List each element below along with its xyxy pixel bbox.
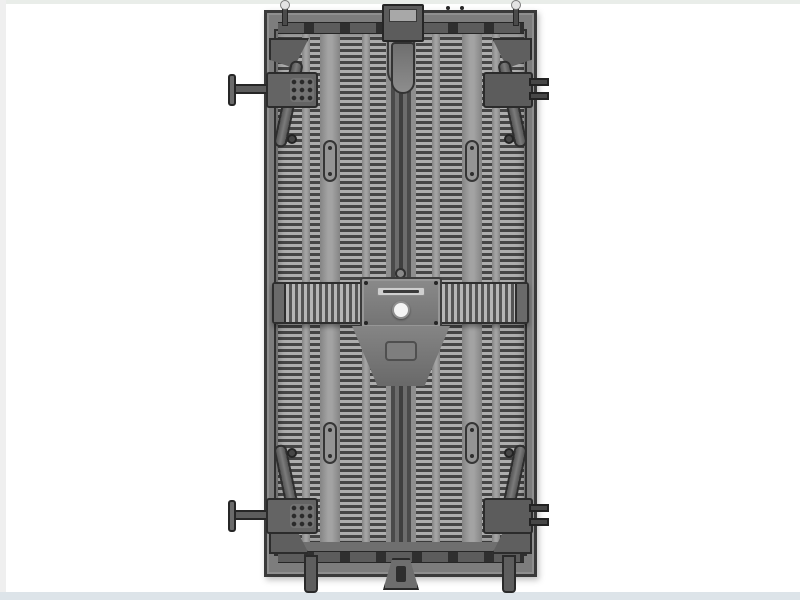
corner-latch-bottom-right: [462, 418, 532, 558]
t-handle-bar: [234, 510, 268, 520]
product-photo-stage: [0, 0, 800, 600]
top-latch-plate: [389, 9, 417, 22]
pin-cap: [280, 0, 290, 10]
round-emblem-button: [392, 301, 410, 319]
pin-cap: [511, 0, 521, 10]
page-edge-left: [0, 0, 6, 594]
shield-recess: [385, 341, 417, 361]
lock-bolt: [529, 78, 549, 86]
corner-bolt-hole: [287, 134, 297, 144]
top-center-latch: [382, 4, 426, 100]
top-latch-tongue: [391, 42, 415, 94]
latch-grip-dots: [290, 78, 314, 102]
lock-block-body: [483, 498, 533, 534]
nameplate-text-blur: [383, 290, 419, 293]
corner-bolt-hole: [287, 448, 297, 458]
t-handle-latch-top-left: [228, 70, 320, 110]
bar-end-cap-left: [274, 284, 286, 322]
screw-dot: [460, 6, 464, 10]
screw-dot: [446, 6, 450, 10]
lock-block-top-right: [483, 70, 557, 110]
plate-screw: [434, 321, 438, 325]
bottom-foot-hole: [396, 566, 406, 582]
bottom-hook-left: [304, 555, 318, 593]
floor-strip: [0, 592, 800, 600]
top-guide-pin-right: [511, 0, 521, 26]
lock-block-bottom-right: [483, 496, 557, 536]
t-handle-bar: [234, 84, 268, 94]
lock-bolt: [529, 504, 549, 512]
led-cabinet-rear: [264, 10, 537, 587]
corner-latch-bottom-left: [269, 418, 339, 558]
plate-screw: [364, 281, 368, 285]
corner-bolt-hole: [504, 134, 514, 144]
corner-plate: [269, 38, 309, 68]
bar-end-cap-right: [515, 284, 527, 322]
lock-bolt: [529, 92, 549, 100]
top-guide-pin-left: [280, 0, 290, 26]
latch-grip-dots: [290, 504, 314, 528]
brand-nameplate: [377, 287, 425, 296]
plate-screw: [434, 281, 438, 285]
bottom-hook-right: [502, 555, 516, 593]
lock-block-body: [483, 72, 533, 108]
plate-screw: [364, 321, 368, 325]
corner-bolt-hole: [504, 448, 514, 458]
lock-bolt: [529, 518, 549, 526]
t-handle-latch-bottom-left: [228, 496, 320, 536]
